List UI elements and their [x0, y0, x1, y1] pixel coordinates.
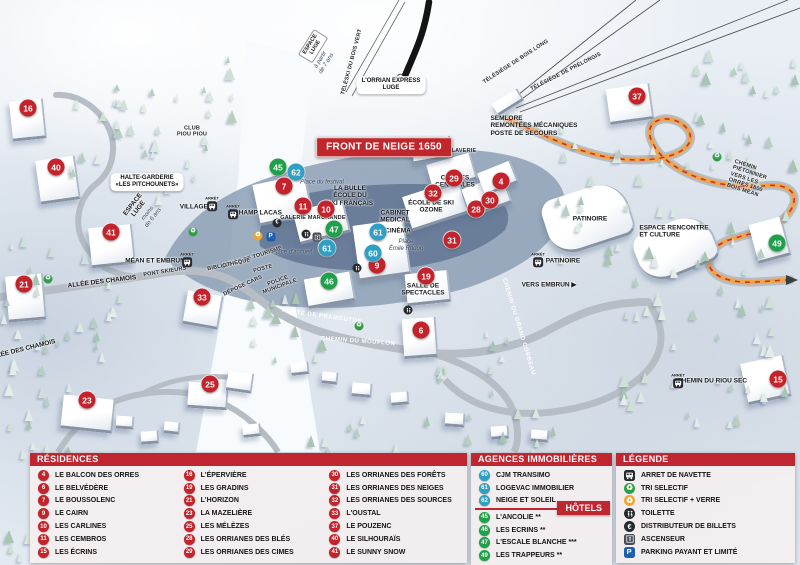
map-marker-37: 37 [629, 88, 646, 105]
map-label: LAVERIE [452, 148, 477, 154]
tree [206, 109, 212, 117]
tree [227, 110, 237, 123]
tree [587, 175, 595, 186]
tree [727, 420, 733, 428]
tree [149, 88, 155, 96]
legende-list: ARRET DE NAVETTE♻TRI SELECTIF♻TRI SELECT… [616, 466, 795, 559]
recycle-icon: ♻ [355, 322, 364, 331]
recycle-icon: ♻ [189, 228, 198, 237]
tree [534, 439, 540, 447]
bus-stop: ARRÊT [226, 203, 240, 219]
tree [615, 243, 621, 251]
tree [44, 396, 50, 406]
tree [26, 421, 32, 429]
tree [4, 530, 14, 543]
recycle-map-icon: ♻ [44, 275, 53, 284]
bus-icon [673, 378, 683, 388]
tree [466, 413, 472, 420]
tree [781, 386, 789, 397]
tree [25, 409, 33, 421]
bus-icon [533, 257, 543, 267]
tree [30, 442, 36, 450]
tree [555, 197, 561, 206]
map-label: CHEMIN DU RIOU SEC [677, 377, 747, 384]
map-label: VERS EMBRUN ▶ [522, 281, 577, 288]
tree [653, 293, 663, 306]
tree [768, 326, 776, 336]
tree [225, 67, 235, 80]
bus-stop: ARRÊT [531, 251, 545, 267]
map-marker-19: 19 [418, 268, 435, 285]
legend-row: 7LE BOUSSOLENC [30, 495, 176, 508]
legend-label: LES ORRIANES DES NEIGES [346, 485, 443, 492]
wc-icon [404, 306, 413, 315]
legend-pin-45: 45 [479, 512, 490, 523]
arret-micro-label: ARRÊT [180, 251, 194, 256]
legend-pin-49: 49 [479, 550, 490, 561]
building [445, 412, 466, 427]
legend-row: 19LES GRADINS [176, 482, 322, 495]
legend-label: LES MÉLÈZES [201, 523, 250, 530]
legend-row: 16L'ÉPERVIÈRE [176, 469, 322, 482]
panel-residences-title: RÉSIDENCES [30, 453, 467, 466]
map-marker-25: 25 [202, 376, 219, 393]
tree [424, 416, 430, 426]
legend-row: 10LES CARLINES [30, 520, 176, 533]
legend-label: L'ESCALE BLANCHE *** [496, 539, 577, 546]
map-label: SALLE DE SPECTACLES [401, 283, 444, 298]
tree [742, 70, 750, 82]
tree [206, 91, 214, 101]
arret-micro-label: ARRÊT [205, 195, 219, 200]
tree [746, 134, 752, 144]
panel-legende: LÉGENDE ARRET DE NAVETTE♻TRI SELECTIF♻TR… [616, 453, 795, 563]
tree [670, 208, 676, 217]
legende-row: €DISTRIBUTEUR DE BILLETS [616, 520, 795, 533]
tree [738, 304, 746, 316]
map-label: CLUB PIOU PIOU [177, 126, 207, 139]
map-marker-21: 21 [16, 276, 33, 293]
tree [1, 314, 7, 324]
euro-icon: € [273, 219, 282, 228]
tree [575, 223, 581, 232]
wc-map-icon [353, 264, 362, 273]
tree [78, 152, 86, 162]
tree [116, 99, 122, 107]
tree [230, 93, 234, 100]
map-marker-40: 40 [48, 159, 65, 176]
tree [572, 141, 578, 149]
legend-label: LE CAIRN [55, 510, 88, 517]
hotels-separator [475, 508, 566, 510]
legend-label: LE BELVÉDÈRE [55, 485, 108, 492]
tree [562, 204, 570, 216]
tree [704, 49, 714, 62]
hotels-list: 45L'ANCOLIE **46LES ECRINS **47L'ESCALE … [471, 511, 612, 562]
tree [791, 57, 797, 67]
tree [694, 417, 700, 427]
tree [650, 145, 656, 155]
building [242, 423, 261, 438]
map-marker-7: 7 [276, 178, 293, 195]
legend-pin-29: 29 [184, 547, 195, 558]
verre-icon: ♻ [254, 232, 263, 241]
legend-label: LE SUNNY SNOW [346, 549, 405, 556]
tree [745, 384, 751, 393]
tree [765, 136, 773, 147]
verre-icon: ♻ [624, 495, 635, 506]
tree [499, 431, 507, 443]
legend-pin-9: 9 [38, 508, 49, 519]
tree [292, 292, 300, 304]
legend-pin-32: 32 [329, 495, 340, 506]
legend-label: L'OUSTAL [346, 510, 380, 517]
bus-stop: ARRÊT [205, 195, 219, 211]
tree [99, 111, 107, 121]
map-label: Place d'accueil [272, 250, 312, 257]
tree [750, 85, 756, 94]
legend-label: LE BOUSSOLENC [55, 497, 115, 504]
resort-map-plan: ESPACE LUGEà partir de 7 ansTÉLÉSKI DU B… [0, 0, 800, 565]
tree [727, 150, 733, 159]
map-marker-29: 29 [446, 170, 463, 187]
tree [489, 340, 497, 351]
tree [764, 89, 770, 97]
tree [14, 329, 22, 339]
tree [505, 337, 509, 344]
tree [739, 61, 745, 69]
tree [464, 434, 472, 445]
tree [291, 325, 299, 337]
legend-row: 32LES ORRIANES DES SOURCES [321, 495, 467, 508]
recycle-map-icon: ♻ [355, 322, 364, 331]
map-marker-47: 47 [326, 221, 343, 238]
tree [17, 552, 23, 562]
legend-label: LA MAZELIÈRE [201, 510, 252, 517]
tree [185, 158, 191, 168]
legende-row: TOILETTE [616, 507, 795, 520]
map-label: LA BULLE ÉCOLE DU SKI FRANÇAIS [327, 185, 373, 207]
tree [718, 285, 724, 294]
tree [634, 173, 644, 186]
legend-pin-6: 6 [38, 483, 49, 494]
tree [671, 342, 677, 350]
legend-row: 15LES ÉCRINS [30, 546, 176, 559]
tree [81, 253, 89, 264]
legend-pin-15: 15 [38, 547, 49, 558]
map-marker-10: 10 [318, 201, 335, 218]
panel-agences-title: AGENCES IMMOBILIÈRES [471, 453, 612, 466]
bus-icon [228, 209, 238, 219]
map-marker-61: 61 [319, 240, 336, 257]
building [116, 415, 135, 429]
tree [560, 151, 568, 162]
tree [658, 307, 666, 320]
tree [620, 394, 628, 405]
legend-row: 11LES CEMBROS [30, 533, 176, 546]
map-label: L'ORRIAN EXPRESS LUGE [357, 76, 426, 94]
legend-pin-19: 19 [184, 483, 195, 494]
legend-pin-4: 4 [38, 470, 49, 481]
legend-row: 45L'ANCOLIE ** [471, 511, 612, 524]
legend-label: L'HORIZON [201, 497, 239, 504]
legend-label: LES GRADINS [201, 485, 249, 492]
legend-label: LE POUZENC [346, 523, 391, 530]
tree [202, 86, 206, 93]
map-label: HALTE-GARDERIE «LES PITCHOUNETS» [110, 173, 183, 191]
map-marker-11: 11 [295, 198, 312, 215]
legende-label: TRI SELECTIF [641, 485, 688, 492]
legend-pin-61: 61 [479, 483, 490, 494]
recycle-map-icon: ♻ [713, 153, 722, 162]
tree [641, 372, 649, 383]
legend-row: 61LOGEVAC IMMOBILIER [471, 482, 612, 495]
legend-row: 60CJM TRANSIMO [471, 469, 612, 482]
tree [142, 149, 148, 157]
tree [619, 374, 629, 387]
bus-icon [207, 201, 217, 211]
tree [4, 383, 14, 396]
legend-row: 21L'HORIZON [176, 495, 322, 508]
tree [4, 298, 10, 306]
wc-map-icon [404, 306, 413, 315]
legend-label: LES ÉCRINS [55, 549, 97, 556]
park-icon: P. [267, 233, 276, 242]
tree [742, 268, 748, 275]
legend-pin-23: 23 [184, 508, 195, 519]
legend-label: CJM TRANSIMO [496, 472, 550, 479]
legend-label: L'ANCOLIE ** [496, 514, 541, 521]
tree [550, 426, 556, 436]
panel-legende-title: LÉGENDE [616, 453, 795, 466]
tree [99, 352, 105, 362]
tree [250, 315, 258, 325]
legend-label: LES ORRIANES DES BLÉS [201, 536, 290, 543]
wc-icon [353, 264, 362, 273]
tree [7, 422, 13, 431]
map-label: MÉAN ET EMBRUN [125, 257, 185, 264]
tree [731, 238, 735, 245]
tree [74, 99, 80, 109]
tree [532, 408, 540, 418]
tree [247, 298, 255, 309]
recycle-icon: ♻ [44, 275, 53, 284]
map-marker-62: 62 [288, 164, 305, 181]
tree [271, 311, 281, 324]
tree [624, 203, 630, 211]
building [141, 430, 160, 444]
legend-row: 40LE SILHOURAÏS [321, 533, 467, 546]
legend-pin-21: 21 [184, 495, 195, 506]
map-marker-33: 33 [194, 289, 211, 306]
legende-label: DISTRIBUTEUR DE BILLETS [641, 523, 736, 530]
legend-label: NEIGE ET SOLEIL [496, 497, 556, 504]
map-label: Place Émile Rodon [389, 239, 423, 253]
tree [76, 322, 84, 332]
tree [774, 85, 780, 93]
map-marker-60: 60 [365, 245, 382, 262]
tree [633, 277, 639, 286]
map-marker-6: 6 [413, 322, 430, 339]
tree [656, 205, 664, 217]
bus-icon [182, 257, 192, 267]
tree [150, 150, 156, 158]
wc-icon [624, 508, 635, 519]
tree [731, 67, 737, 75]
legend-label: LE SILHOURAÏS [346, 536, 400, 543]
tree [760, 392, 768, 402]
tree [20, 235, 28, 247]
tree [56, 339, 60, 346]
map-marker-23: 23 [79, 392, 96, 409]
legend-pin-11: 11 [38, 534, 49, 545]
legend-row: 25LES MÉLÈZES [176, 520, 322, 533]
legend-row: 46LES ECRINS ** [471, 524, 612, 537]
legend-pin-60: 60 [479, 470, 490, 481]
building [163, 421, 180, 435]
tree [693, 64, 701, 75]
legend-row: 30LES ORRIANES DES FORÊTS [321, 469, 467, 482]
tree [686, 411, 690, 418]
map-marker-61: 61 [370, 224, 387, 241]
map-marker-15: 15 [770, 371, 787, 388]
tree [38, 365, 46, 375]
legende-row: ♻TRI SELECTIF + VERRE [616, 495, 795, 508]
tree [627, 399, 635, 411]
legend-row: 4LE BALCON DES ORRES [30, 469, 176, 482]
tree [604, 254, 612, 265]
map-label: ESPACE RENCONTRE ET CULTURE [639, 225, 708, 240]
tree [141, 103, 147, 112]
tree [637, 391, 645, 402]
legend-row: 28LES ORRIANES DES BLÉS [176, 533, 322, 546]
euro-icon: € [624, 521, 635, 532]
legend-label: L'ÉPERVIÈRE [201, 472, 247, 479]
bus-stop: ARRÊT [671, 372, 685, 388]
tree [444, 366, 448, 373]
tree [499, 354, 505, 362]
tree [360, 415, 366, 424]
legend-row: 37LE POUZENC [321, 520, 467, 533]
tree [8, 544, 14, 553]
map-marker-30: 30 [482, 192, 499, 209]
tree [727, 221, 735, 233]
tree [273, 356, 277, 363]
legend-label: LES ECRINS ** [496, 527, 545, 534]
tree [114, 84, 120, 91]
panel-residences: RÉSIDENCES 4LE BALCON DES ORRES6LE BELVÉ… [30, 453, 467, 563]
legende-label: TRI SELECTIF + VERRE [641, 497, 720, 504]
recycle-map-icon: ♻ [189, 228, 198, 237]
map-label: CINÉMA [385, 227, 411, 234]
tree [282, 294, 288, 304]
tree [728, 384, 734, 391]
tree [697, 114, 705, 125]
legend-row: 9LE CAIRN [30, 507, 176, 520]
legend-pin-62: 62 [479, 495, 490, 506]
tree [765, 344, 775, 357]
map-marker-16: 16 [20, 100, 37, 117]
tree [34, 286, 40, 296]
legend-pin-7: 7 [38, 495, 49, 506]
legende-row: P.PARKING PAYANT ET LIMITÉ [616, 546, 795, 559]
recycle-icon: ♻ [624, 483, 635, 494]
asc-map-icon [313, 233, 322, 242]
tree [670, 267, 678, 278]
arret-micro-label: ARRÊT [226, 203, 240, 208]
legend-label: LES TRAPPEURS ** [496, 552, 562, 559]
legend-label: LE BALCON DES ORRES [55, 472, 139, 479]
legende-label: TOILETTE [641, 510, 675, 517]
tree [10, 242, 14, 249]
tree [578, 204, 584, 212]
legend-pin-10: 10 [38, 521, 49, 532]
legend-label: LES ORRIANES DES FORÊTS [346, 472, 445, 479]
tree [20, 449, 26, 459]
map-marker-49: 49 [769, 235, 786, 252]
building [351, 382, 372, 398]
recycle-icon: ♻ [713, 153, 722, 162]
arret-micro-label: ARRÊT [531, 251, 545, 256]
asc-icon [313, 233, 322, 242]
verre-map-icon: ♻ [254, 232, 263, 241]
euro-map-icon: € [273, 219, 282, 228]
tree [9, 363, 17, 375]
tree [438, 375, 442, 382]
tree [485, 330, 489, 337]
tree [685, 161, 691, 170]
tree [791, 74, 799, 85]
park-map-icon: P. [267, 233, 276, 242]
tree [689, 309, 697, 320]
tree [514, 408, 522, 419]
legend-row: 41LE SUNNY SNOW [321, 546, 467, 559]
tree [142, 140, 146, 147]
map-marker-45: 45 [270, 159, 287, 176]
tree [94, 153, 102, 164]
legend-pin-16: 16 [184, 470, 195, 481]
front-de-neige-banner: FRONT DE NEIGE 1650 [316, 137, 452, 157]
tree [701, 251, 709, 261]
tree [347, 423, 353, 431]
tree [263, 305, 273, 318]
tree [307, 435, 315, 447]
building [290, 361, 309, 376]
tree [66, 383, 72, 392]
park-icon: P. [624, 547, 635, 558]
tree [490, 389, 494, 396]
tree [782, 210, 790, 221]
tree [788, 159, 798, 172]
tree [94, 331, 100, 341]
tree [32, 273, 40, 285]
map-marker-46: 46 [321, 273, 338, 290]
legend-pin-31: 31 [329, 483, 340, 494]
tree [313, 353, 319, 362]
map-label: PATINOIRE [546, 257, 580, 264]
tree [70, 168, 76, 177]
tree [711, 162, 715, 169]
tree [760, 304, 764, 311]
bus-icon [624, 470, 635, 481]
legende-label: ASCENSEUR [641, 536, 685, 543]
tree [716, 333, 720, 340]
legend-pin-47: 47 [479, 537, 490, 548]
tree [643, 305, 651, 316]
legend-pin-41: 41 [329, 547, 340, 558]
tree [354, 427, 360, 437]
map-marker-41: 41 [103, 224, 120, 241]
